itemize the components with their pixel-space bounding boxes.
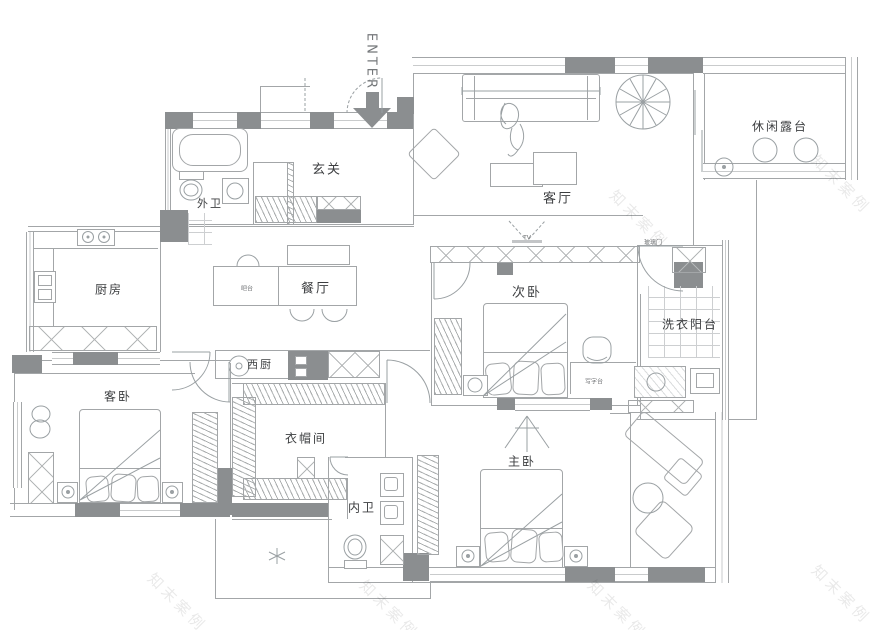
ac-fan <box>468 378 482 392</box>
sliding-door <box>695 90 702 172</box>
room-label-living-room: 客厅 <box>543 188 573 207</box>
ceiling-light-icon <box>505 416 549 452</box>
chair-icon <box>583 337 611 363</box>
chair-icon <box>30 406 50 438</box>
plan-curves-layer <box>0 0 880 630</box>
room-label-dining: 餐厅 <box>301 278 331 297</box>
chair-icon <box>322 309 347 322</box>
room-label-second-bedroom: 次卧 <box>512 282 542 301</box>
door-arc <box>434 263 470 299</box>
room-label-west-kitchen: 西厨 <box>247 356 273 372</box>
washer-drum <box>647 373 665 391</box>
bar-counter-label: 吧台 <box>241 284 253 293</box>
room-label-laundry-balcony: 洗衣阳台 <box>662 316 718 333</box>
door-arc <box>330 457 348 475</box>
glass-door-arc <box>638 246 683 291</box>
enter-label: ENTER <box>364 33 379 91</box>
desk-label: 写字台 <box>585 377 603 386</box>
floor-plan: ENTER 玄关 外卫 客厅 休闲露台 厨房 餐厅 吧台 次卧 洗衣阳台 玻璃门… <box>0 0 880 630</box>
terrace-stool-icon <box>715 138 818 176</box>
door-arc <box>387 360 430 403</box>
room-label-guest-bedroom: 客卧 <box>104 388 132 405</box>
sprinkler-icon <box>269 548 285 564</box>
spiral-staircase-icon <box>616 75 670 129</box>
person-figure <box>501 103 524 156</box>
bath-sink-bowl <box>227 183 243 199</box>
dimension-line <box>462 87 600 95</box>
side-table-icon <box>633 483 663 513</box>
round-sink-icon <box>229 356 249 376</box>
room-label-kitchen: 厨房 <box>95 281 123 298</box>
stove-burners-icon <box>83 232 110 243</box>
room-label-guest-bath: 外卫 <box>197 195 223 211</box>
chair-icon <box>290 309 314 321</box>
toilet-icon <box>344 535 366 559</box>
room-label-cloakroom: 衣帽间 <box>285 430 327 447</box>
room-label-entry-hall: 玄关 <box>312 159 342 178</box>
tv-label: TV <box>523 235 531 242</box>
room-label-master-bath: 内卫 <box>348 499 376 516</box>
chair-icon <box>237 255 259 266</box>
room-label-master-bedroom: 主卧 <box>508 453 536 470</box>
room-label-terrace: 休闲露台 <box>752 118 808 135</box>
lamp-icon <box>62 486 582 562</box>
